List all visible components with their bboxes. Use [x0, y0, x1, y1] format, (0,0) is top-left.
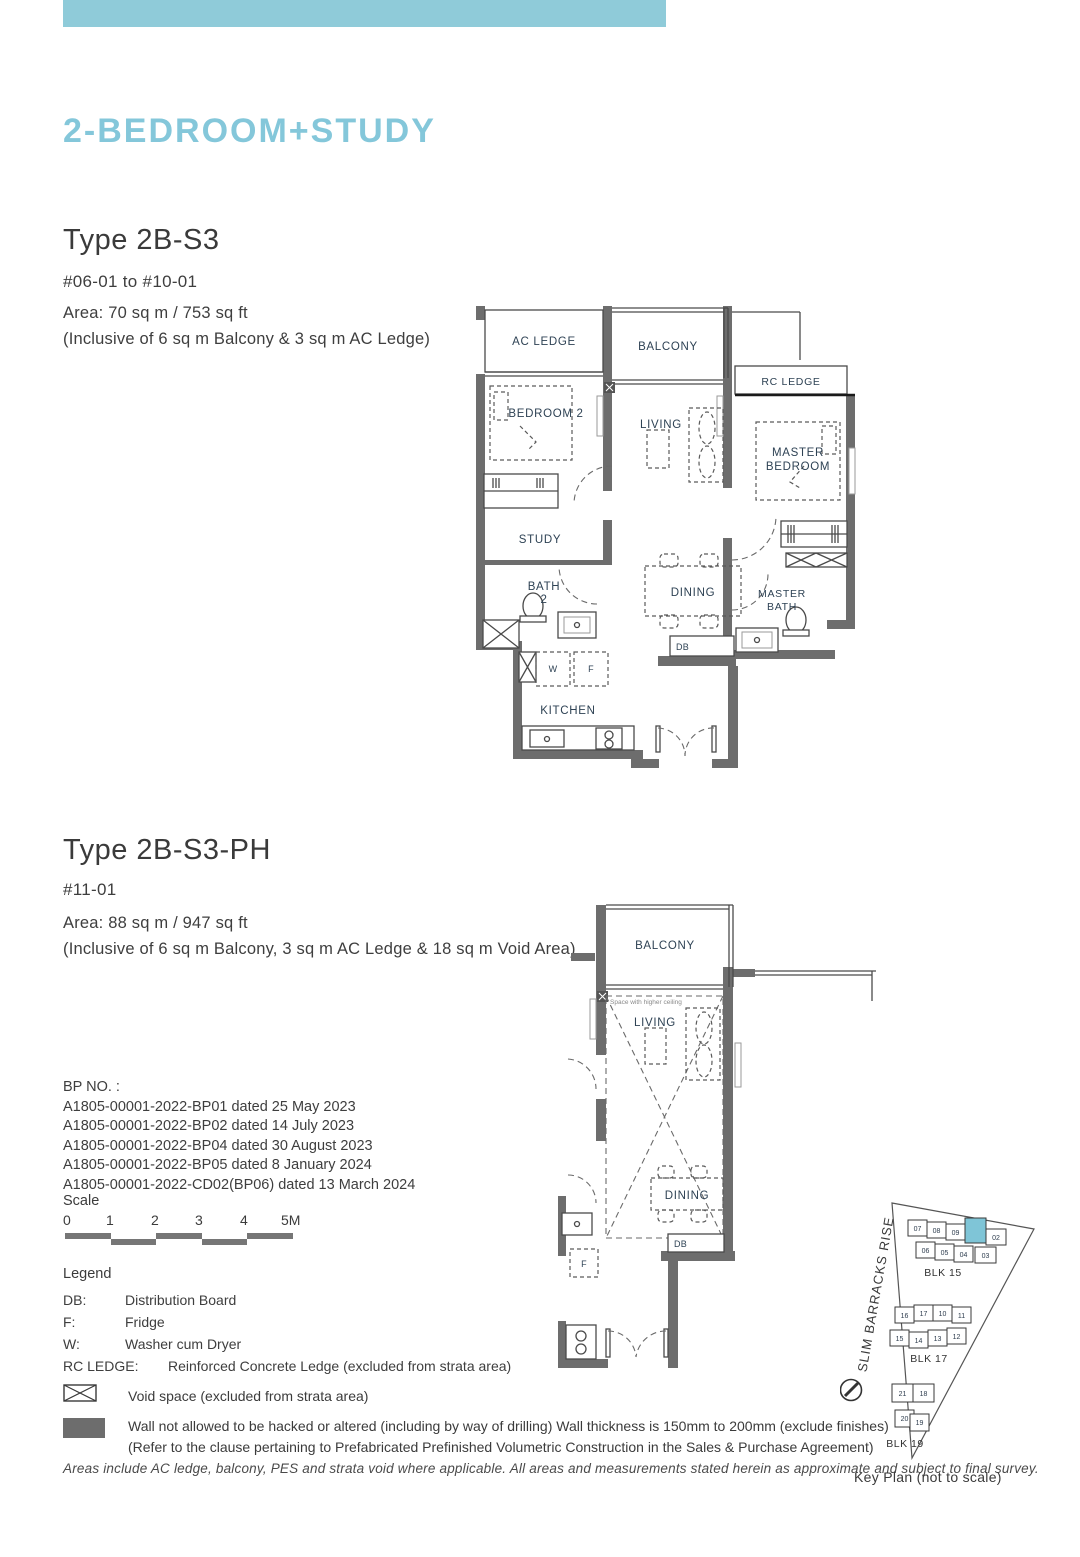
door-arc-icon [568, 1059, 668, 1357]
wall-note: Wall not allowed to be hacked or altered… [128, 1416, 889, 1458]
wardrobe-icon [781, 521, 847, 547]
svg-text:12: 12 [953, 1334, 961, 1341]
svg-text:08: 08 [933, 1228, 941, 1235]
svg-text:16: 16 [901, 1313, 909, 1320]
unit-a-area-line2: (Inclusive of 6 sq m Balcony & 3 sq m AC… [63, 330, 430, 349]
svg-text:19: 19 [916, 1420, 924, 1427]
bp-number-block: BP NO. : A1805-00001-2022-BP01 dated 25 … [63, 1078, 415, 1195]
legend-row-db: DB:Distribution Board [63, 1292, 236, 1308]
svg-text:BEDROOM: BEDROOM [766, 461, 830, 473]
unit-b-area-line2: (Inclusive of 6 sq m Balcony, 3 sq m AC … [63, 940, 576, 959]
key-plan: SLIM BARRACKS RISE 07 08 09 02 06 05 04 … [840, 1190, 1080, 1520]
stove-icon [566, 1325, 596, 1359]
unit-b-type-heading: Type 2B-S3-PH [63, 834, 271, 867]
sink-icon [736, 628, 778, 652]
bp-item: A1805-00001-2022-BP02 dated 14 July 2023 [63, 1117, 415, 1137]
db-label: DB [676, 642, 689, 652]
unit-b-area-line1: Area: 88 sq m / 947 sq ft [63, 914, 248, 933]
void-space-icon [63, 1384, 97, 1407]
svg-text:11: 11 [958, 1313, 965, 1320]
bp-item: A1805-00001-2022-CD02(BP06) dated 13 Mar… [63, 1176, 415, 1196]
bp-item: A1805-00001-2022-BP04 dated 30 August 20… [63, 1137, 415, 1157]
wall-swatch-icon [63, 1418, 105, 1438]
svg-text:13: 13 [934, 1336, 942, 1343]
bp-heading: BP NO. : [63, 1078, 415, 1098]
room-label-ac-ledge: AC LEDGE [512, 336, 576, 348]
blk19-label: BLK 19 [886, 1438, 923, 1450]
svg-text:05: 05 [941, 1250, 949, 1257]
coffee-table-icon [647, 430, 669, 468]
unit-a-area-line1: Area: 70 sq m / 753 sq ft [63, 304, 248, 323]
svg-text:17: 17 [920, 1311, 928, 1318]
room-label-study: STUDY [519, 534, 561, 546]
room-label-rc-ledge: RC LEDGE [761, 376, 820, 388]
fridge-label: F [588, 664, 594, 674]
svg-text:15: 15 [896, 1336, 904, 1343]
room-label-bedroom2: BEDROOM 2 [508, 408, 583, 420]
fridge-label: F [581, 1259, 587, 1269]
keyplan-caption: Key Plan (not to scale) [854, 1469, 1002, 1485]
room-label-living: LIVING [640, 419, 682, 431]
blk17-label: BLK 17 [910, 1353, 947, 1365]
db-label: DB [674, 1239, 687, 1249]
unit-a-type-heading: Type 2B-S3 [63, 224, 220, 257]
svg-text:03: 03 [982, 1253, 990, 1260]
void-cross-icon [519, 652, 536, 682]
room-label-dining: DINING [671, 587, 715, 599]
unit-a-levels: #06-01 to #10-01 [63, 272, 197, 292]
scale-label: Scale [63, 1193, 99, 1209]
svg-text:02: 02 [992, 1235, 1000, 1242]
window-strip-icon [735, 1043, 741, 1087]
coffee-table-icon [645, 1028, 666, 1064]
void-cross-icon [786, 553, 847, 567]
highlighted-unit [965, 1218, 986, 1243]
sink-icon [562, 1213, 592, 1235]
svg-text:04: 04 [960, 1252, 968, 1259]
room-label-balcony: BALCONY [635, 940, 695, 952]
floorplan-page: 2-BEDROOM+STUDY Type 2B-S3 #06-01 to #10… [0, 0, 1080, 1557]
scale-ticks: 0 1 2 3 4 5M [63, 1212, 373, 1228]
floorplan-2b-s3: AC LEDGE BALCONY RC LEDGE BEDROOM 2 LIVI… [460, 298, 880, 790]
void-space-note: Void space (excluded from strata area) [128, 1388, 368, 1404]
kitchen-counter-icon [522, 726, 634, 750]
floorplan-2b-s3-ph: BALCONY Space with higher ceiling LIVING… [558, 893, 880, 1371]
washer-label: W [549, 664, 558, 674]
bp-item: A1805-00001-2022-BP05 dated 8 January 20… [63, 1156, 415, 1176]
room-label-master-bedroom: MASTER [772, 447, 824, 459]
page-title: 2-BEDROOM+STUDY [63, 112, 436, 151]
svg-text:20: 20 [901, 1416, 909, 1423]
svg-text:18: 18 [920, 1391, 928, 1398]
svg-text:14: 14 [915, 1338, 923, 1345]
window-strip-icon [590, 999, 596, 1039]
legend-row-w: W:Washer cum Dryer [63, 1336, 241, 1352]
window-strip-icon [849, 448, 855, 494]
void-cross-icon [483, 620, 519, 648]
wall-layer [558, 905, 755, 1368]
unit-b-levels: #11-01 [63, 880, 116, 900]
room-label-balcony: BALCONY [638, 341, 698, 353]
window-strip-icon [597, 396, 603, 436]
scale-bar [65, 1233, 293, 1246]
blk19-cluster: 21 18 20 19 BLK 19 [886, 1384, 934, 1450]
room-label-kitchen: KITCHEN [540, 705, 595, 717]
study-desk-icon [484, 474, 558, 508]
accent-top-bar [63, 0, 666, 27]
bp-item: A1805-00001-2022-BP01 dated 25 May 2023 [63, 1098, 415, 1118]
room-label-living: LIVING [634, 1017, 676, 1029]
svg-text:BATH: BATH [767, 601, 797, 613]
svg-text:2: 2 [540, 594, 547, 606]
room-label-bath2: BATH [528, 581, 561, 593]
balcony-vent-icon [604, 382, 615, 393]
blk15-label: BLK 15 [924, 1267, 961, 1279]
svg-text:07: 07 [914, 1226, 922, 1233]
legend-row-rc-ledge: RC LEDGE:Reinforced Concrete Ledge (excl… [63, 1358, 511, 1374]
north-arrow-icon [841, 1380, 862, 1401]
room-label-dining: DINING [665, 1190, 709, 1202]
svg-text:06: 06 [922, 1248, 930, 1255]
legend-row-f: F:Fridge [63, 1314, 165, 1330]
sofa-icon [686, 1008, 720, 1080]
svg-text:09: 09 [952, 1230, 960, 1237]
sink-icon [558, 612, 596, 638]
svg-text:10: 10 [939, 1311, 947, 1318]
svg-text:21: 21 [899, 1391, 907, 1398]
legend-heading: Legend [63, 1266, 111, 1282]
higher-ceiling-note: Space with higher ceiling [610, 999, 682, 1006]
balcony-rails [606, 905, 876, 1001]
bed-icon [490, 386, 572, 460]
room-label-master-bath: MASTER [758, 588, 806, 600]
street-label: SLIM BARRACKS RISE [855, 1215, 897, 1373]
window-strip-icon [717, 396, 723, 436]
